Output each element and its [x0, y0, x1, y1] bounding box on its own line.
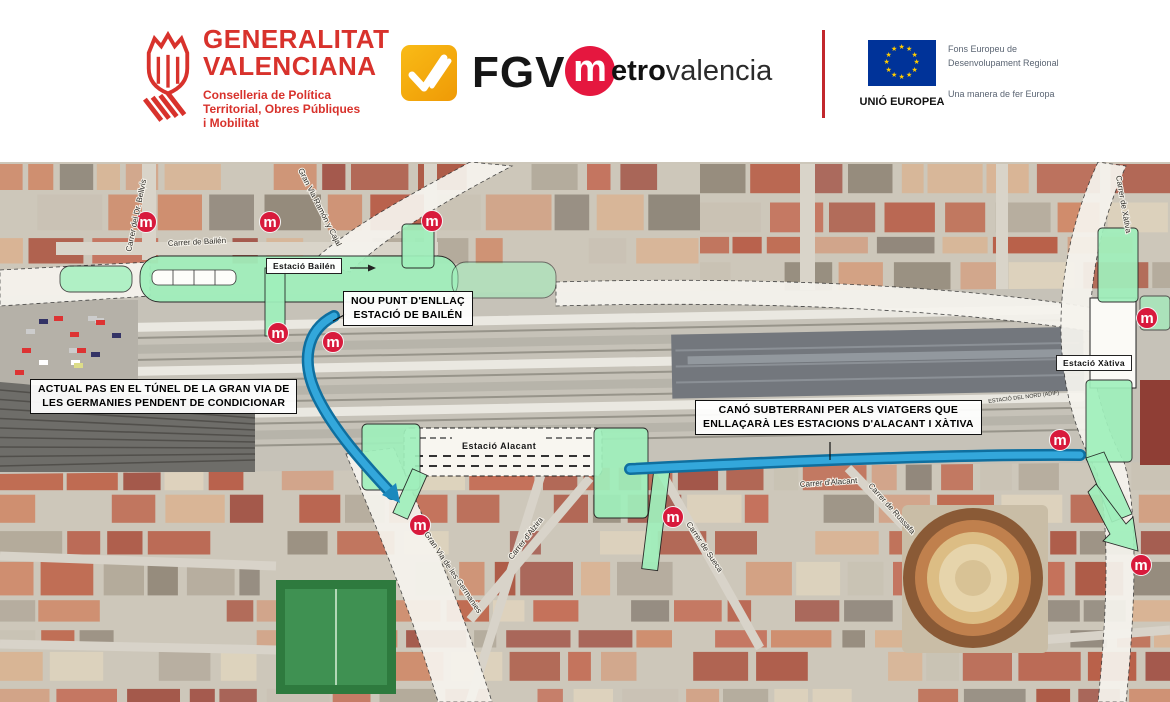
eu-fund-text: Fons Europeu de Desenvolupament Regional [948, 43, 1059, 70]
eu-fund-line2: Desenvolupament Regional [948, 57, 1059, 71]
gva-dept-line2: Territorial, Obres Públiques [203, 102, 390, 116]
metro-station-icon: m [268, 323, 289, 344]
eu-flag-caption: UNIÓ EUROPEA [858, 96, 946, 108]
eu-motto: Una manera de fer Europa [948, 89, 1055, 99]
gva-emblem-icon [142, 26, 194, 130]
generalitat-valenciana-logo: GENERALITAT VALENCIANA Conselleria de Po… [142, 26, 390, 131]
eu-star-icon: ★ [886, 67, 892, 74]
eu-star-icon: ★ [899, 44, 905, 51]
eu-star-icon: ★ [899, 74, 905, 81]
gva-title-line2: VALENCIANA [203, 53, 390, 80]
svg-text:m: m [263, 214, 276, 231]
eu-star-icon: ★ [914, 59, 920, 66]
metro-station-icon: m [1050, 430, 1071, 451]
metro-station-icon: m [663, 507, 684, 528]
metrovalencia-logo: m etro valencia [565, 46, 772, 96]
svg-text:m: m [326, 334, 339, 351]
header-divider [822, 30, 825, 118]
gva-department: Conselleria de Política Territorial, Obr… [203, 88, 390, 131]
eu-star-icon: ★ [884, 59, 890, 66]
fgv-wordmark: FGV [472, 48, 565, 98]
header: GENERALITAT VALENCIANA Conselleria de Po… [0, 0, 1170, 162]
eu-star-icon: ★ [911, 67, 917, 74]
gva-text: GENERALITAT VALENCIANA Conselleria de Po… [203, 26, 390, 131]
svg-text:m: m [413, 517, 426, 534]
gva-dept-line1: Conselleria de Política [203, 88, 390, 102]
svg-text:m: m [1053, 432, 1066, 449]
metrovalencia-wordmark-bold: etro [611, 55, 666, 88]
svg-text:m: m [271, 325, 284, 342]
svg-text:m: m [425, 213, 438, 230]
gva-dept-line3: i Mobilitat [203, 116, 390, 130]
eu-star-icon: ★ [906, 72, 912, 79]
metro-station-icon: m [1131, 555, 1152, 576]
aerial-map: mmmmmmmmmmCarrer de BailénCarrer del Dr.… [0, 162, 1170, 702]
eu-fund-line1: Fons Europeu de [948, 43, 1059, 57]
gva-title-line1: GENERALITAT [203, 26, 390, 53]
metro-station-icon: m [422, 211, 443, 232]
metro-station-icon: m [260, 212, 281, 233]
metrovalencia-wordmark-light: valencia [666, 55, 772, 88]
metro-station-icon: m [323, 332, 344, 353]
svg-text:m: m [1134, 557, 1147, 574]
fgv-check-icon [401, 45, 457, 101]
eu-flag-icon: ★★★★★★★★★★★★ [868, 40, 936, 86]
metro-station-icon: m [1137, 308, 1158, 329]
svg-text:m: m [1140, 310, 1153, 327]
eu-star-icon: ★ [911, 52, 917, 59]
metrovalencia-m-icon: m [565, 46, 615, 96]
map-canvas: mmmmmmmmmmCarrer de BailénCarrer del Dr.… [0, 162, 1170, 702]
infographic-page: GENERALITAT VALENCIANA Conselleria de Po… [0, 0, 1170, 702]
eu-star-icon: ★ [891, 46, 897, 53]
svg-text:m: m [666, 509, 679, 526]
fgv-logo: FGV [401, 45, 565, 101]
svg-text:m: m [139, 214, 152, 231]
